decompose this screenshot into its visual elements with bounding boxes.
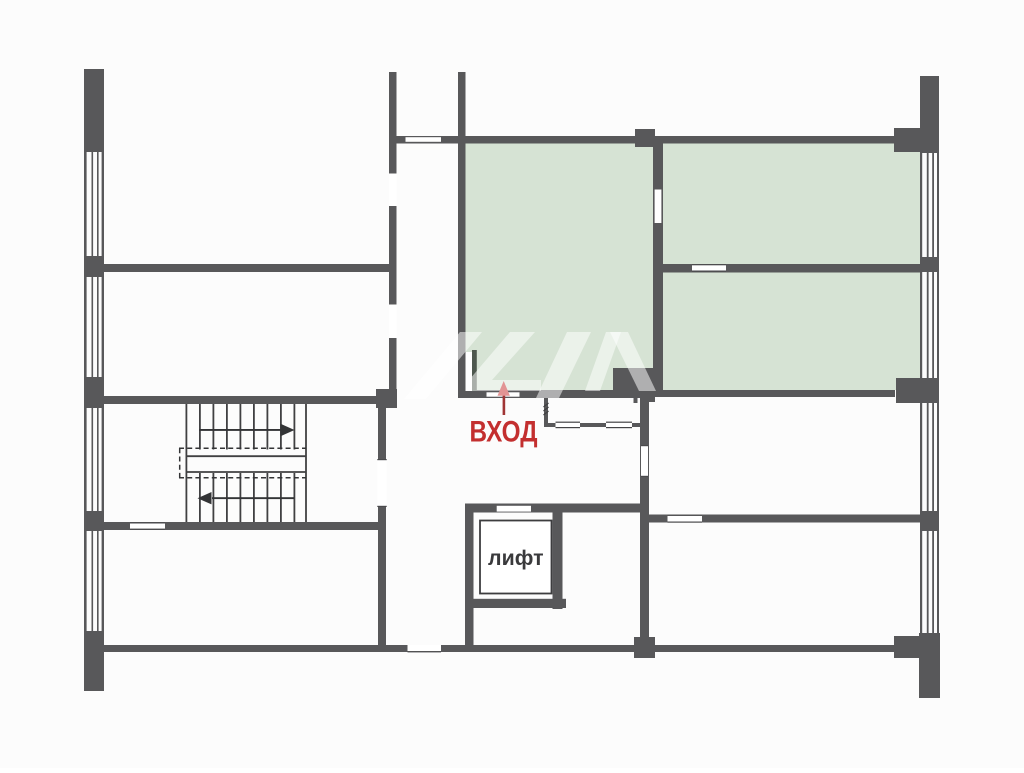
- svg-text:ВХОД: ВХОД: [470, 416, 538, 449]
- svg-text:лифт: лифт: [488, 546, 544, 570]
